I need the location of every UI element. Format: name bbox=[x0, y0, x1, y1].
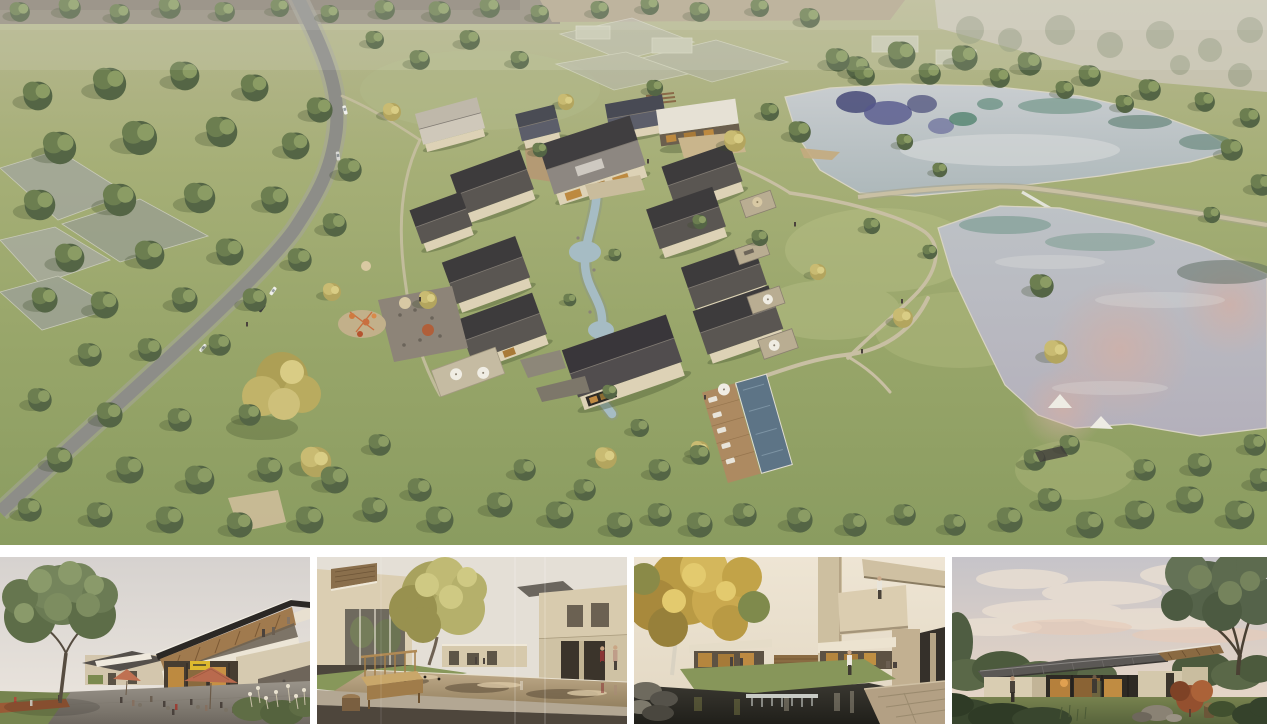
weir bbox=[746, 694, 818, 698]
thumbnail-reflecting-pond bbox=[317, 557, 627, 724]
thumbnail-plaza-cafe bbox=[0, 557, 310, 724]
aerial-scene bbox=[0, 0, 1267, 545]
thumbnail-garden-stream bbox=[634, 557, 945, 724]
thumbnail-row bbox=[0, 557, 1267, 724]
plaza-scene bbox=[0, 557, 310, 724]
main-aerial-render bbox=[0, 0, 1267, 545]
presentation-board bbox=[0, 0, 1267, 724]
pavilion-scene bbox=[952, 557, 1267, 724]
thumbnail-dusk-pavilion bbox=[952, 557, 1267, 724]
courtyard-scene bbox=[317, 557, 627, 724]
atmosphere-wash-top bbox=[0, 0, 1267, 30]
garden-scene bbox=[634, 557, 945, 724]
background-shops bbox=[82, 651, 168, 685]
